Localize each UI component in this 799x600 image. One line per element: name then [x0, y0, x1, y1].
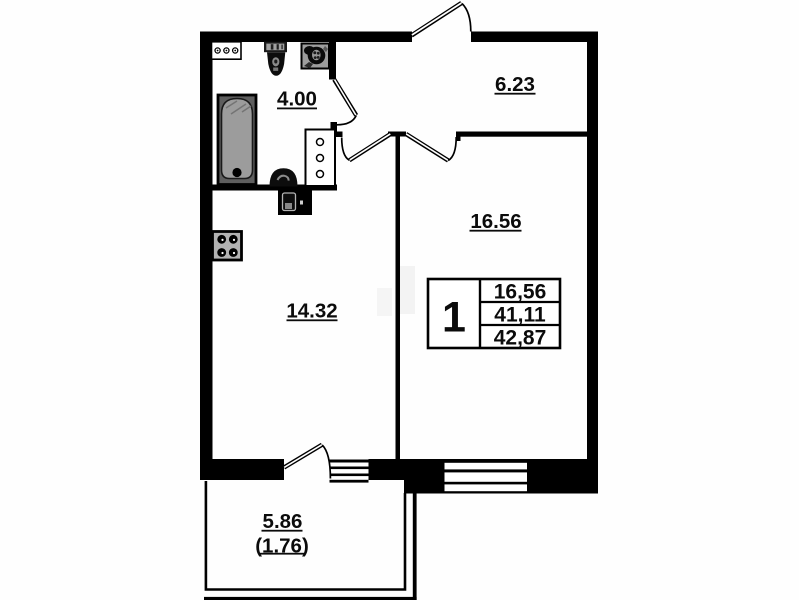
svg-text:6.23: 6.23	[495, 73, 535, 96]
svg-text:4.00: 4.00	[277, 88, 317, 111]
svg-text:16,56: 16,56	[494, 281, 547, 304]
svg-text:16.56: 16.56	[470, 210, 521, 233]
svg-text:5.86: 5.86	[263, 510, 303, 533]
svg-text:41,11: 41,11	[494, 304, 546, 327]
svg-text:14.32: 14.32	[286, 300, 337, 323]
svg-text:42,87: 42,87	[494, 327, 547, 350]
svg-text:1: 1	[442, 294, 466, 342]
